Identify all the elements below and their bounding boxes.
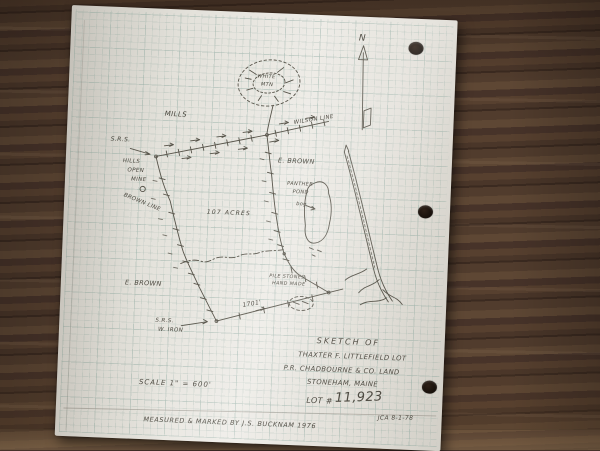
north-label: N — [359, 35, 366, 44]
lot-number-label: LOT # — [306, 397, 333, 406]
north-arrow-icon — [356, 46, 374, 131]
pencil-sketch-drawing — [55, 5, 458, 451]
sketch-paper-sheet: N MILLS S.R.S. HILLS OPEN MINE BROWN LIN… — [55, 5, 458, 451]
e-brown-label-east: E. BROWN — [278, 157, 315, 165]
pond-label-line1: PANTHER — [287, 182, 313, 188]
mills-label: MILLS — [165, 111, 188, 119]
mountain-label-line1: WHITE — [257, 74, 276, 80]
dashed-circle-marker — [289, 296, 314, 311]
open-mine-label-line2: MINE — [131, 178, 147, 184]
north-boundary-line — [130, 108, 329, 164]
hills-label: HILLS — [123, 159, 141, 165]
mountain-label-line2: MTN — [261, 83, 274, 88]
srs-corner-label-bottom: S.R.S. — [155, 319, 174, 325]
date-initials-note: JCA 8-1-78 — [378, 416, 414, 422]
stone-wall-meander-line — [181, 246, 284, 268]
paper-crease-lines — [63, 20, 451, 445]
south-boundary-line — [181, 283, 343, 332]
bog-label: bog — [296, 202, 307, 207]
w-iron-label: W. IRON — [158, 328, 183, 335]
e-brown-label-west: E. BROWN — [125, 279, 162, 287]
lot-number-value: 11,923 — [335, 390, 383, 404]
pond-label-line2: POND — [293, 190, 309, 196]
west-boundary-line — [135, 156, 223, 321]
road-double-line — [338, 145, 408, 306]
srs-corner-label-top: S.R.S. — [111, 137, 131, 144]
open-mine-label-line1: OPEN — [127, 168, 144, 174]
